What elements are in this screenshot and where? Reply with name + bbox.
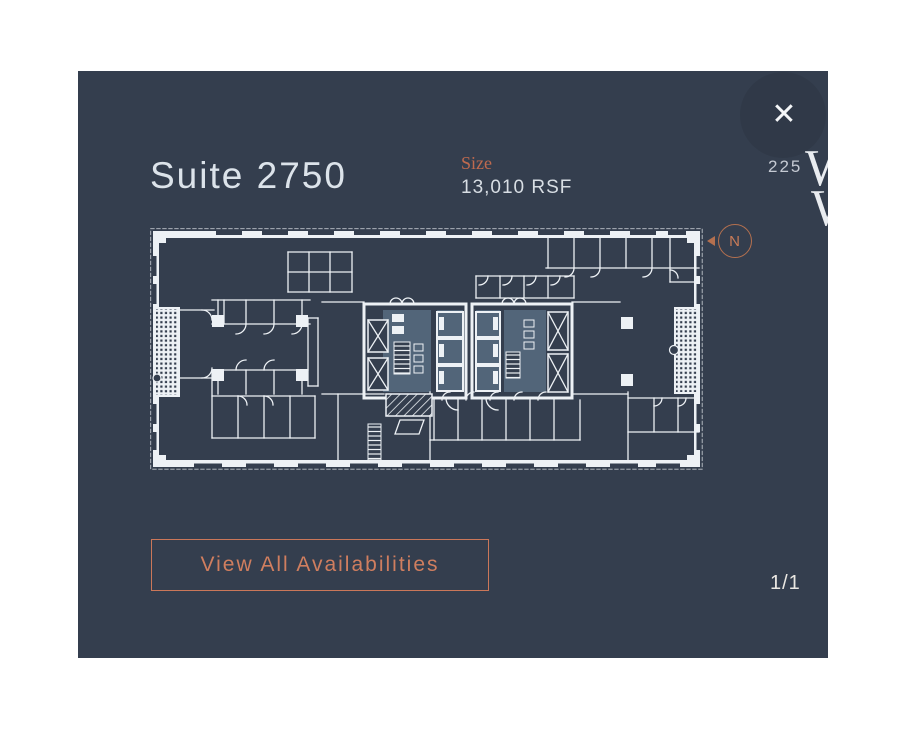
suite-title: Suite 2750 bbox=[150, 155, 347, 197]
page: 225 W W ✕ Suite 2750 Size 13,010 RSF N bbox=[0, 0, 906, 742]
floor-plan bbox=[150, 228, 703, 470]
suite-detail-modal: 225 W W ✕ Suite 2750 Size 13,010 RSF N bbox=[78, 71, 828, 658]
logo-letter-1: W bbox=[805, 143, 828, 195]
logo-letter-2: W bbox=[811, 183, 828, 235]
size-block: Size 13,010 RSF bbox=[461, 153, 572, 199]
compass-west-arrow-icon bbox=[707, 236, 715, 246]
page-indicator: 1/1 bbox=[770, 572, 801, 595]
compass-label: N bbox=[729, 233, 741, 250]
logo-prefix: 225 bbox=[768, 157, 802, 177]
size-label: Size bbox=[461, 153, 572, 174]
view-all-availabilities-button[interactable]: View All Availabilities bbox=[151, 539, 489, 591]
size-value: 13,010 RSF bbox=[461, 177, 572, 199]
close-icon[interactable]: ✕ bbox=[762, 93, 806, 137]
compass-north-icon: N bbox=[718, 224, 752, 258]
